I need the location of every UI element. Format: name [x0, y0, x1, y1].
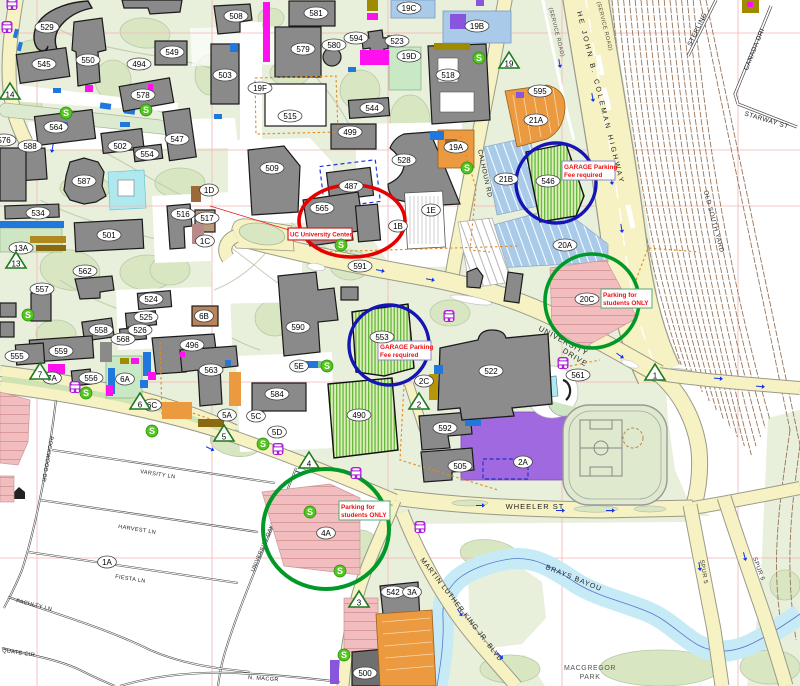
- svg-text:5E: 5E: [294, 362, 304, 371]
- svg-text:588: 588: [23, 142, 37, 151]
- svg-text:494: 494: [132, 60, 146, 69]
- svg-text:GARAGE Parking: GARAGE Parking: [564, 164, 617, 171]
- svg-text:Fee required: Fee required: [564, 172, 602, 179]
- svg-text:590: 590: [291, 323, 305, 332]
- svg-text:523: 523: [390, 37, 404, 46]
- svg-text:1C: 1C: [200, 237, 210, 246]
- svg-text:591: 591: [353, 262, 367, 271]
- svg-text:580: 580: [327, 41, 341, 50]
- svg-text:594: 594: [349, 34, 363, 43]
- svg-text:515: 515: [283, 112, 297, 121]
- svg-text:556: 556: [84, 374, 98, 383]
- svg-text:UC University Center: UC University Center: [290, 232, 352, 239]
- svg-text:578: 578: [136, 91, 150, 100]
- svg-text:553: 553: [375, 333, 389, 342]
- svg-text:592: 592: [438, 424, 452, 433]
- svg-text:496: 496: [185, 341, 199, 350]
- svg-text:499: 499: [343, 128, 357, 137]
- svg-text:GARAGE Parking: GARAGE Parking: [380, 344, 433, 351]
- svg-text:14: 14: [6, 91, 15, 100]
- svg-text:3A: 3A: [407, 588, 417, 597]
- svg-text:529: 529: [40, 23, 54, 32]
- svg-text:534: 534: [31, 209, 45, 218]
- svg-text:5D: 5D: [272, 428, 282, 437]
- svg-text:561: 561: [571, 371, 585, 380]
- svg-text:559: 559: [54, 347, 68, 356]
- svg-text:547: 547: [170, 135, 184, 144]
- svg-text:2A: 2A: [518, 458, 528, 467]
- svg-text:542: 542: [386, 588, 400, 597]
- svg-text:1D: 1D: [204, 186, 214, 195]
- svg-text:5: 5: [222, 433, 227, 442]
- svg-text:S: S: [307, 507, 313, 517]
- svg-text:S: S: [476, 53, 482, 63]
- svg-text:students ONLY: students ONLY: [603, 300, 649, 307]
- svg-text:528: 528: [397, 156, 411, 165]
- svg-text:505: 505: [453, 462, 467, 471]
- svg-text:S: S: [25, 310, 31, 320]
- svg-text:S: S: [464, 163, 470, 173]
- svg-text:490: 490: [352, 411, 366, 420]
- svg-text:568: 568: [116, 335, 130, 344]
- svg-text:5A: 5A: [222, 411, 232, 420]
- svg-text:524: 524: [144, 295, 158, 304]
- svg-text:PARK: PARK: [580, 674, 601, 681]
- svg-text:19F: 19F: [253, 84, 267, 93]
- svg-text:587: 587: [77, 177, 91, 186]
- svg-text:19C: 19C: [402, 4, 417, 13]
- svg-text:MACGREGOR: MACGREGOR: [564, 665, 616, 672]
- svg-text:2C: 2C: [419, 377, 429, 386]
- svg-text:501: 501: [102, 231, 116, 240]
- svg-text:581: 581: [309, 9, 323, 18]
- svg-text:1B: 1B: [393, 222, 403, 231]
- svg-text:558: 558: [94, 326, 108, 335]
- svg-text:555: 555: [10, 352, 24, 361]
- svg-text:546: 546: [541, 177, 555, 186]
- svg-text:19A: 19A: [449, 143, 464, 152]
- svg-text:549: 549: [165, 48, 179, 57]
- svg-text:502: 502: [113, 142, 127, 151]
- svg-text:517: 517: [200, 214, 214, 223]
- svg-text:526: 526: [133, 326, 147, 335]
- svg-text:6B: 6B: [199, 312, 209, 321]
- svg-text:584: 584: [270, 390, 284, 399]
- svg-text:20A: 20A: [558, 241, 573, 250]
- svg-text:S: S: [143, 105, 149, 115]
- svg-text:S: S: [338, 240, 344, 250]
- svg-text:S: S: [63, 108, 69, 118]
- svg-text:557: 557: [35, 285, 49, 294]
- svg-text:563: 563: [204, 366, 218, 375]
- svg-text:562: 562: [78, 267, 92, 276]
- svg-text:500: 500: [358, 669, 372, 678]
- svg-text:545: 545: [37, 60, 51, 69]
- svg-text:Fee required: Fee required: [380, 352, 418, 359]
- svg-text:7: 7: [38, 371, 43, 380]
- svg-text:516: 516: [176, 210, 190, 219]
- svg-text:Parking for: Parking for: [603, 292, 637, 299]
- svg-text:554: 554: [140, 150, 154, 159]
- svg-text:503: 503: [218, 71, 232, 80]
- svg-text:565: 565: [315, 204, 329, 213]
- svg-text:19D: 19D: [402, 52, 417, 61]
- svg-text:19B: 19B: [470, 22, 484, 31]
- svg-text:students ONLY: students ONLY: [341, 512, 387, 519]
- svg-text:564: 564: [49, 123, 63, 132]
- svg-text:S: S: [324, 361, 330, 371]
- svg-text:487: 487: [344, 182, 358, 191]
- svg-text:595: 595: [533, 87, 547, 96]
- svg-text:6: 6: [138, 401, 143, 410]
- svg-text:1A: 1A: [102, 558, 112, 567]
- svg-text:4: 4: [307, 460, 312, 469]
- svg-text:550: 550: [81, 56, 95, 65]
- svg-text:508: 508: [229, 12, 243, 21]
- svg-text:4A: 4A: [321, 529, 331, 538]
- svg-text:19: 19: [505, 60, 514, 69]
- svg-text:21B: 21B: [499, 175, 513, 184]
- svg-text:1: 1: [653, 372, 658, 381]
- svg-text:3: 3: [357, 599, 362, 608]
- svg-text:21A: 21A: [529, 116, 544, 125]
- svg-text:20C: 20C: [580, 295, 595, 304]
- svg-text:509: 509: [265, 164, 279, 173]
- svg-text:13: 13: [12, 260, 21, 269]
- svg-text:S: S: [83, 388, 89, 398]
- svg-text:576: 576: [0, 136, 11, 145]
- svg-text:5C: 5C: [251, 412, 261, 421]
- svg-text:522: 522: [484, 367, 498, 376]
- svg-text:525: 525: [139, 313, 153, 322]
- svg-text:S: S: [341, 650, 347, 660]
- svg-text:579: 579: [296, 45, 310, 54]
- svg-text:Parking for: Parking for: [341, 504, 375, 511]
- svg-text:544: 544: [365, 104, 379, 113]
- svg-text:S: S: [149, 426, 155, 436]
- svg-text:6A: 6A: [120, 375, 130, 384]
- svg-text:S: S: [260, 439, 266, 449]
- svg-text:1E: 1E: [426, 206, 436, 215]
- svg-text:518: 518: [441, 71, 455, 80]
- svg-text:2: 2: [417, 401, 422, 410]
- svg-text:S: S: [337, 566, 343, 576]
- svg-text:WHEELER ST: WHEELER ST: [506, 502, 565, 511]
